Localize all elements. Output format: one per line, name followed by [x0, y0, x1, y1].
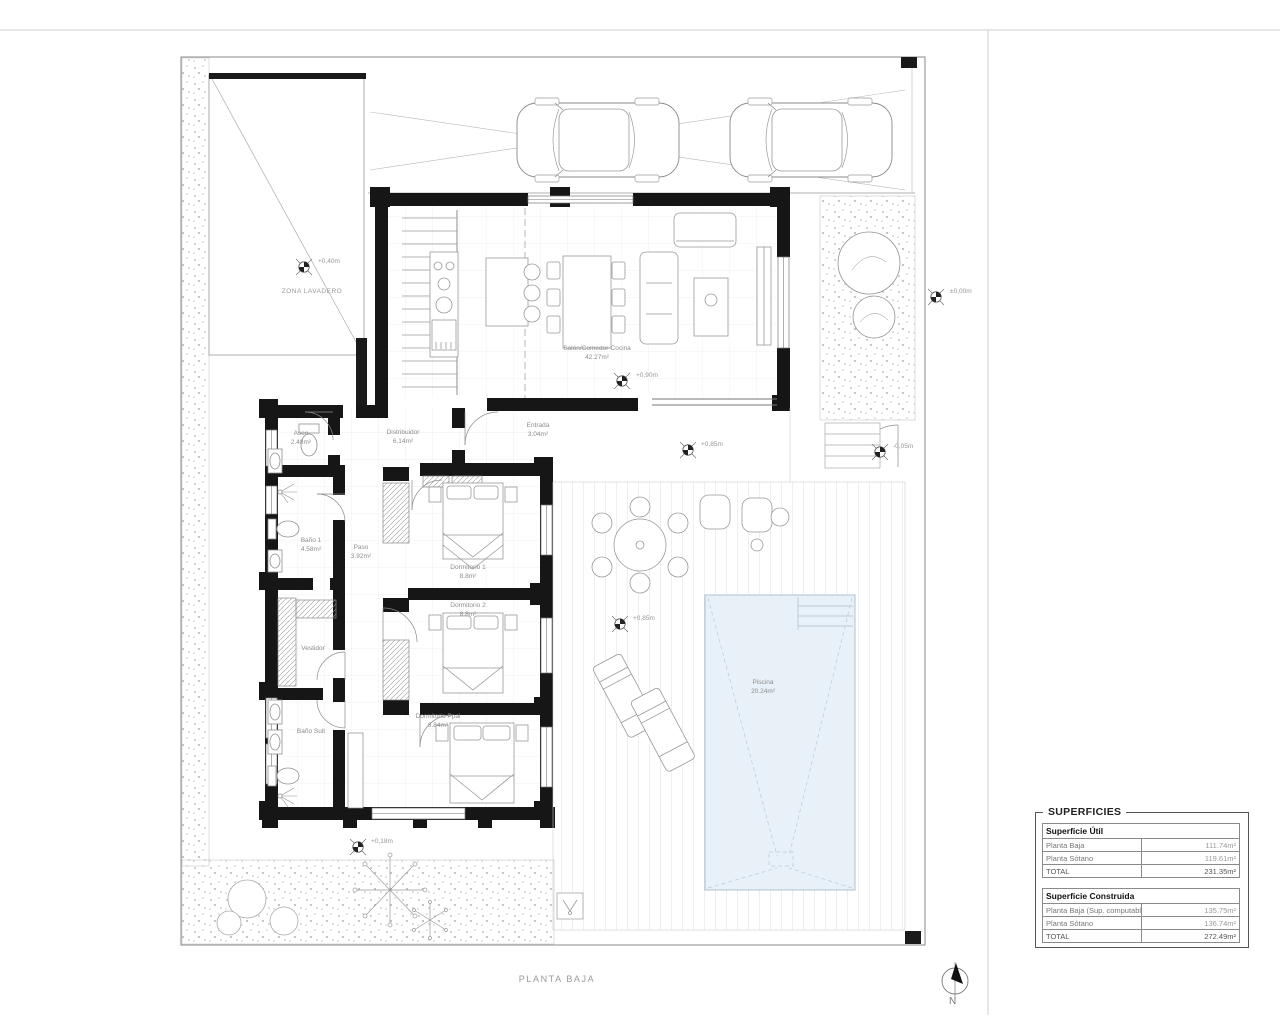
car-icon	[517, 98, 679, 182]
row-value: 135.75m²	[1141, 904, 1240, 917]
table-header: Superficie Construida	[1043, 889, 1240, 904]
table-row: Planta Baja (Sup. computable)135.75m²	[1043, 904, 1240, 917]
row-label: Planta Baja (Sup. computable)	[1043, 904, 1142, 917]
table-row: Planta Sótano136.74m²	[1043, 917, 1240, 930]
floor-plan-sheet: Salón/Comedor-Cocina42.27m² Distribuidor…	[0, 0, 1280, 1024]
car-icon	[730, 98, 892, 182]
superficie-construida-table: Superficie Construida Planta Baja (Sup. …	[1042, 888, 1240, 943]
row-label: TOTAL	[1043, 930, 1142, 943]
table-row: Planta Sótano119.61m²	[1043, 852, 1240, 865]
row-value: 136.74m²	[1141, 917, 1240, 930]
superficie-util-table: Superficie Útil Planta Baja111.74m² Plan…	[1042, 823, 1240, 878]
table-row-total: TOTAL231.35m²	[1043, 865, 1240, 878]
row-value: 272.49m²	[1141, 930, 1240, 943]
row-label: Planta Sótano	[1043, 917, 1142, 930]
north-arrow-icon	[942, 962, 968, 999]
row-label: Planta Sótano	[1043, 852, 1142, 865]
north-label: N	[949, 996, 956, 1007]
level-marker-icon	[612, 616, 628, 632]
row-value: 231.35m²	[1141, 865, 1240, 878]
superficies-title: SUPERFICIES	[1043, 806, 1126, 818]
row-value: 119.61m²	[1141, 852, 1240, 865]
table-row-total: TOTAL272.49m²	[1043, 930, 1240, 943]
row-label: TOTAL	[1043, 865, 1142, 878]
porch-steps	[825, 423, 880, 468]
row-value: 111.74m²	[1141, 839, 1240, 852]
table-row: Planta Baja111.74m²	[1043, 839, 1240, 852]
superficies-panel: SUPERFICIES Superficie Útil Planta Baja1…	[1035, 812, 1249, 948]
row-label: Planta Baja	[1043, 839, 1142, 852]
level-marker-icon	[928, 289, 944, 305]
drawing-title: PLANTA BAJA	[497, 974, 617, 984]
table-header: Superficie Útil	[1043, 824, 1240, 839]
pool	[705, 595, 855, 890]
